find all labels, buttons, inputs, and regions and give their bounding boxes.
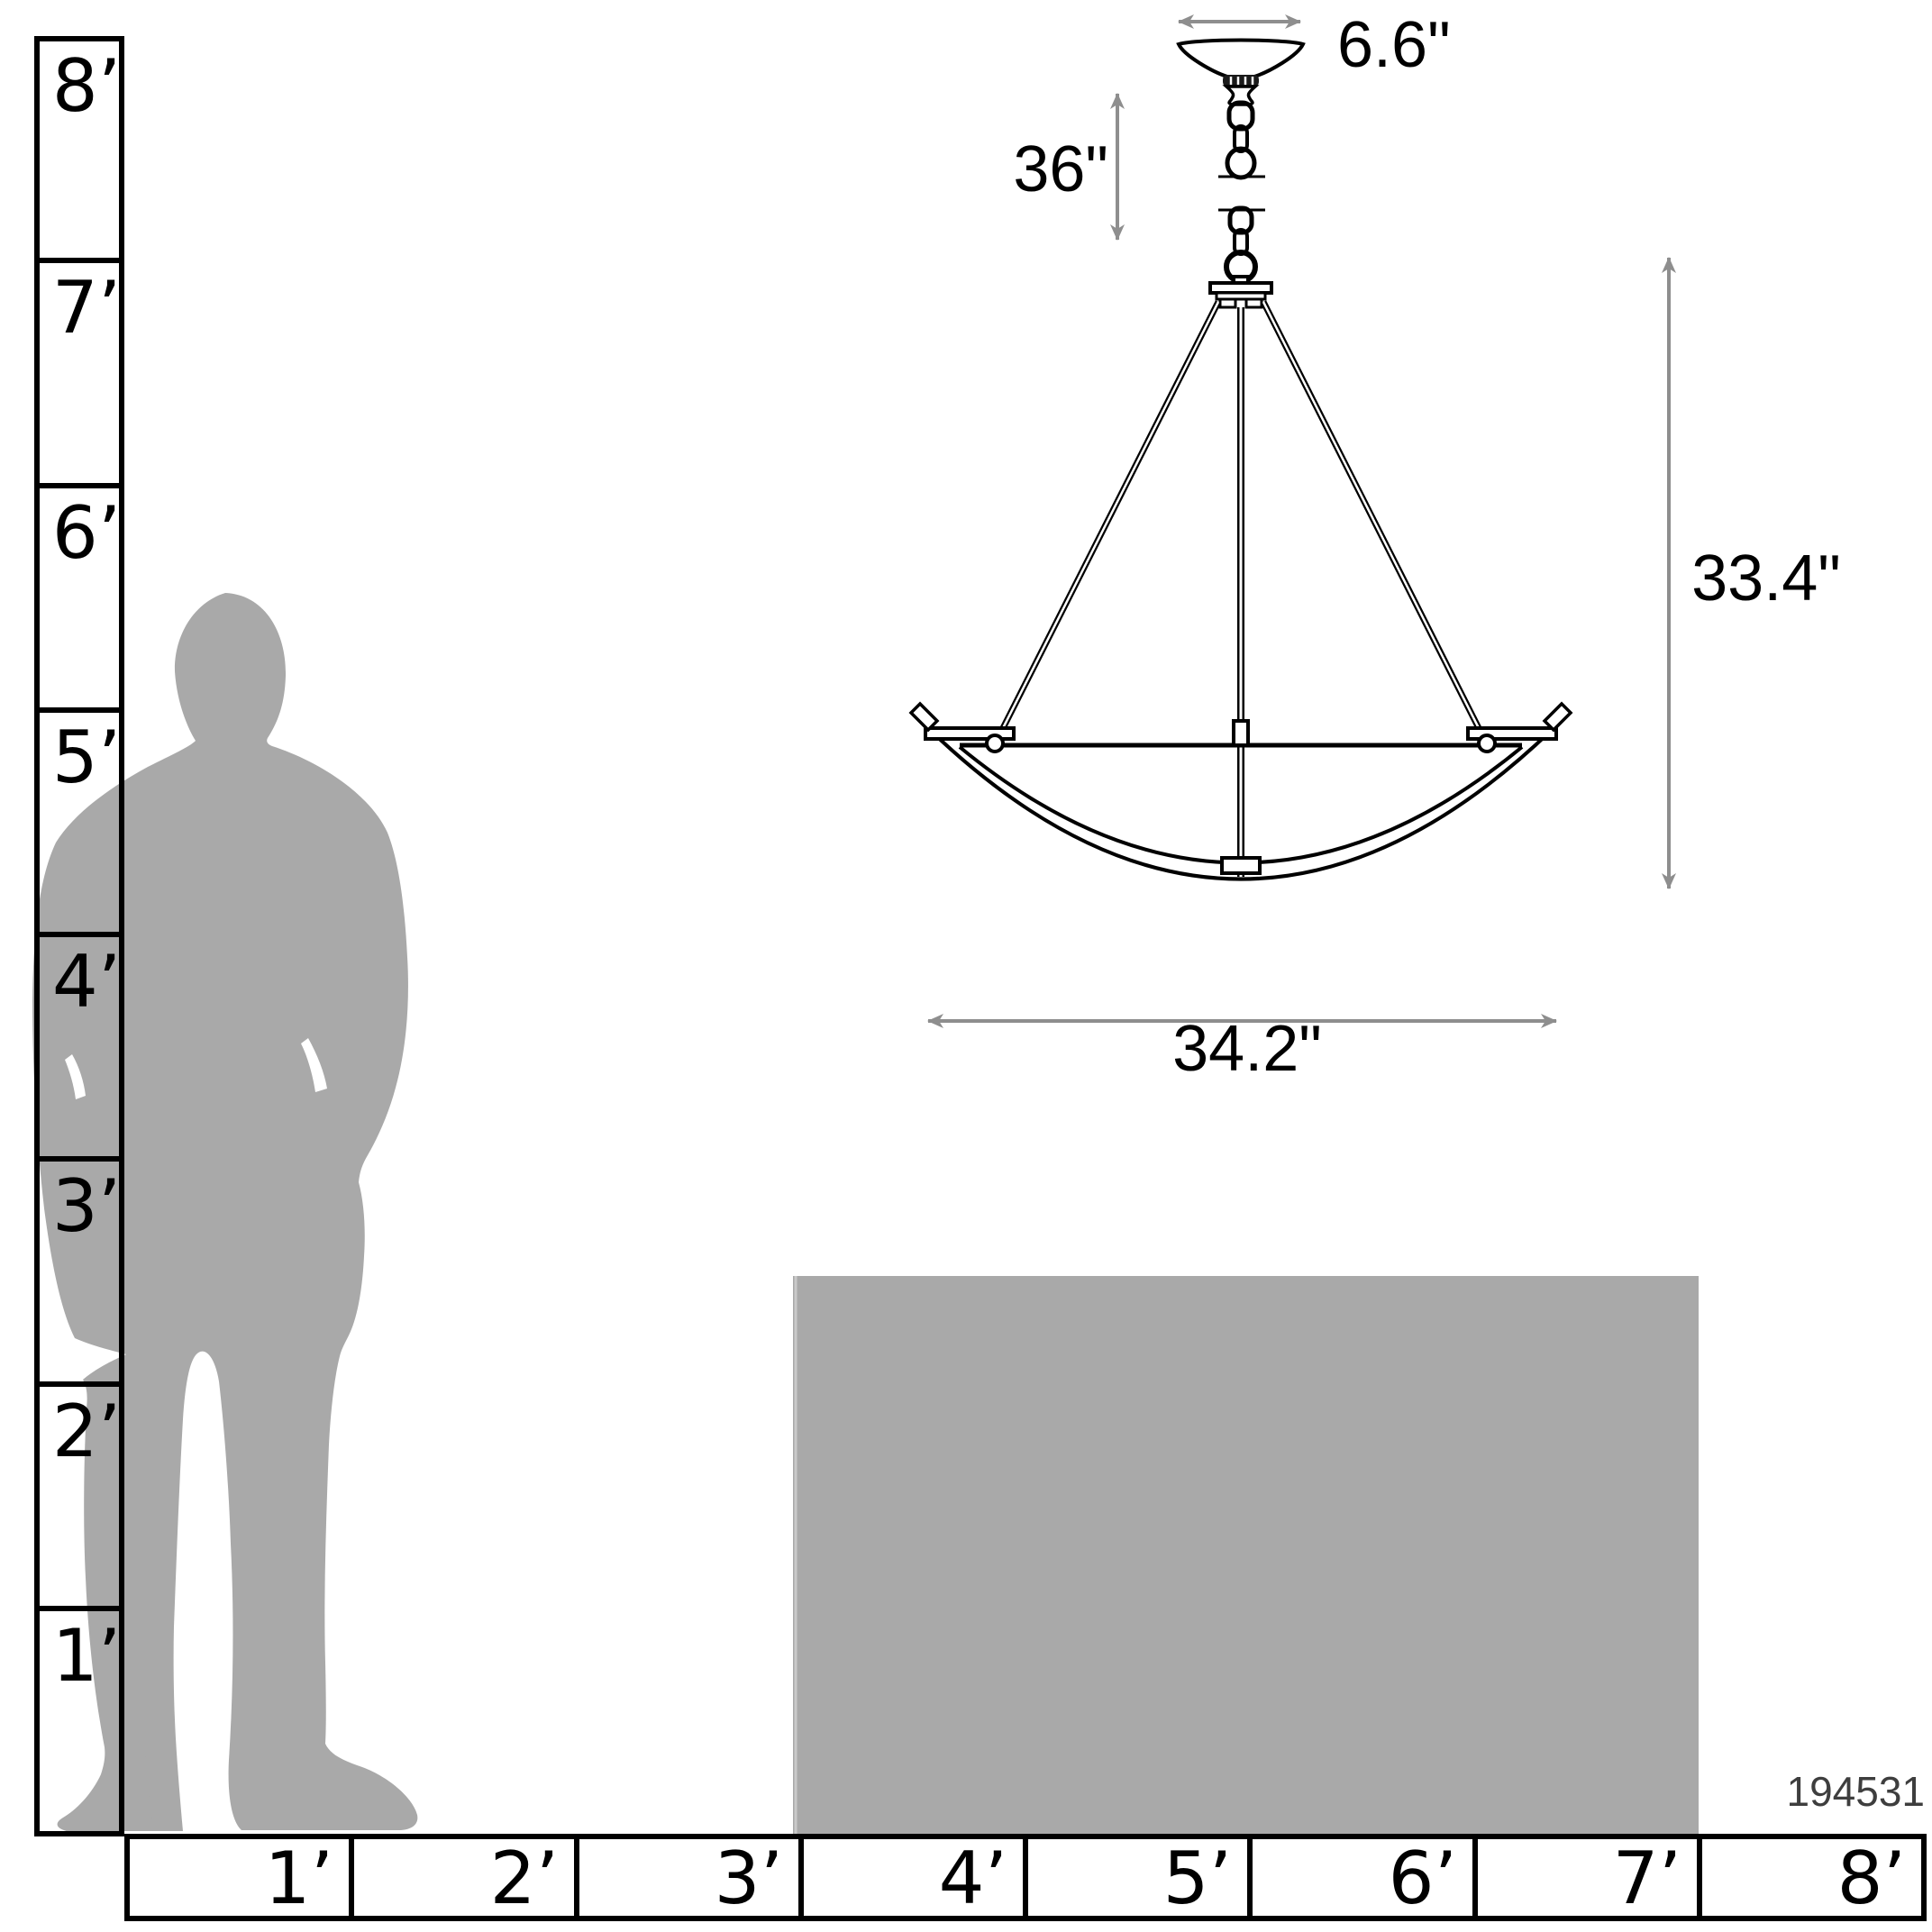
- hruler-label-2ft: 2’: [490, 1836, 559, 1920]
- left-rod-core: [1000, 302, 1218, 734]
- diagram-canvas: 8’ 7’ 6’ 5’ 4’ 3’ 2’ 1’ 1’ 2’ 3’ 4’ 5’ 6…: [0, 0, 1932, 1932]
- flange-plate: [1210, 283, 1271, 293]
- horizontal-ruler-labels: 1’ 2’ 3’ 4’ 5’ 6’ 7’ 8’: [265, 1836, 1906, 1920]
- vruler-label-3ft: 3’: [52, 1164, 121, 1248]
- vruler-label-7ft: 7’: [52, 266, 121, 350]
- fixture-width-label: 34.2": [1172, 1013, 1322, 1085]
- hruler-label-4ft: 4’: [939, 1836, 1007, 1920]
- bottom-finial-nut: [1222, 858, 1260, 873]
- hruler-label-8ft: 8’: [1837, 1836, 1906, 1920]
- hruler-label-6ft: 6’: [1389, 1836, 1457, 1920]
- scale-diagram-svg: 8’ 7’ 6’ 5’ 4’ 3’ 2’ 1’ 1’ 2’ 3’ 4’ 5’ 6…: [0, 0, 1932, 1932]
- left-bracket-tab: [911, 704, 937, 730]
- rod-collar: [1234, 721, 1248, 745]
- pendant-fixture: [911, 41, 1571, 879]
- right-rod-ball: [1479, 735, 1495, 752]
- silhouette-instep-fix: [58, 1747, 153, 1831]
- chain-length-dimension: 36": [1013, 94, 1117, 240]
- support-rods: [1000, 302, 1481, 877]
- hruler-label-7ft: 7’: [1613, 1836, 1681, 1920]
- hruler-label-3ft: 3’: [715, 1836, 783, 1920]
- hruler-label-5ft: 5’: [1163, 1836, 1232, 1920]
- vruler-label-5ft: 5’: [52, 715, 121, 799]
- product-code: 194531: [1787, 1768, 1926, 1815]
- vruler-label-8ft: 8’: [52, 44, 121, 128]
- chain-length-label: 36": [1013, 133, 1108, 205]
- flange-tab: [1220, 299, 1235, 307]
- hruler-label-1ft: 1’: [265, 1836, 333, 1920]
- chain-upper: [1227, 103, 1254, 178]
- fixture-height-label: 33.4": [1691, 542, 1841, 615]
- left-rod-ball: [987, 735, 1003, 752]
- vruler-label-4ft: 4’: [52, 940, 121, 1024]
- vruler-label-6ft: 6’: [52, 491, 121, 575]
- canopy-width-label: 6.6": [1337, 9, 1451, 81]
- vruler-label-2ft: 2’: [52, 1390, 121, 1473]
- table-block: [793, 1276, 1699, 1834]
- table-rect: [793, 1276, 1699, 1834]
- fixture-height-dimension: 33.4": [1669, 258, 1841, 889]
- vruler-label-1ft: 1’: [52, 1614, 121, 1698]
- right-rod-core: [1263, 302, 1481, 734]
- ceiling-canopy: [1179, 41, 1303, 77]
- flange-tab: [1246, 299, 1262, 307]
- right-bracket-tab: [1545, 704, 1571, 730]
- chain-lower: [1226, 208, 1255, 286]
- fixture-width-dimension: 34.2": [928, 1013, 1556, 1085]
